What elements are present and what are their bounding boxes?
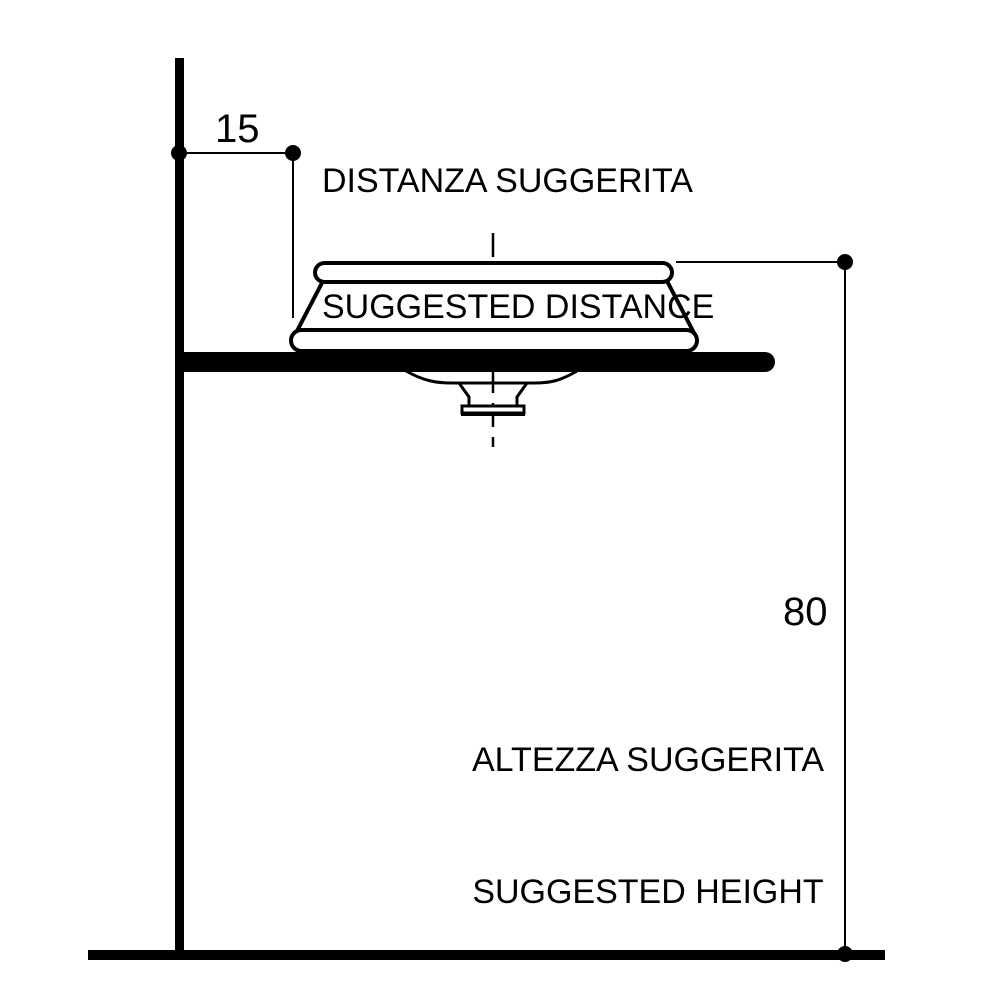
- distance-label-english: SUGGESTED DISTANCE: [322, 286, 714, 328]
- distance-dot-wall: [171, 145, 187, 161]
- installation-diagram: DISTANZA SUGGERITA SUGGESTED DISTANCE 15…: [0, 0, 1000, 1000]
- distance-value: 15: [215, 109, 259, 149]
- height-label-block: ALTEZZA SUGGERITA SUGGESTED HEIGHT: [448, 650, 848, 1000]
- distance-label-italian: DISTANZA SUGGERITA: [322, 160, 714, 202]
- height-value: 80: [783, 592, 827, 632]
- height-dot-top: [837, 254, 853, 270]
- wall-line: [175, 58, 184, 960]
- distance-dot-basin: [285, 145, 301, 161]
- distance-label-block: DISTANZA SUGGERITA SUGGESTED DISTANCE: [322, 76, 714, 412]
- height-label-english: SUGGESTED HEIGHT: [448, 870, 848, 914]
- dimension-distance: [171, 145, 301, 318]
- height-label-italian: ALTEZZA SUGGERITA: [448, 738, 848, 782]
